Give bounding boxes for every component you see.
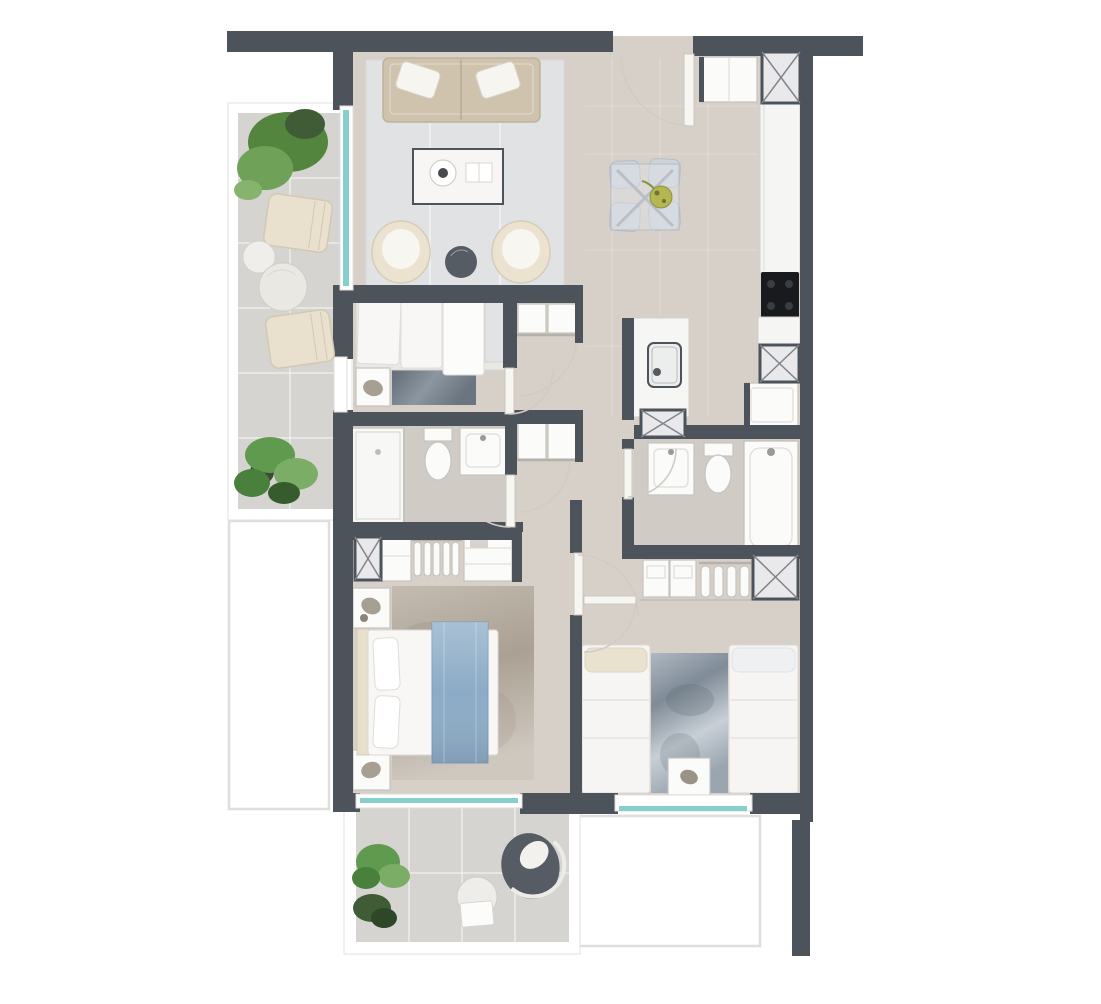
- bed-duvet: [443, 293, 484, 375]
- master-door-leaf: [574, 553, 583, 615]
- kitchen-sink: [648, 343, 681, 387]
- wall-corridor-west: [570, 500, 582, 553]
- burner: [767, 280, 775, 288]
- toilet-tank: [424, 428, 452, 441]
- toilet-bowl: [705, 455, 731, 493]
- wall-laundry-jamb: [744, 383, 750, 427]
- bathtub: [744, 441, 798, 553]
- centerpiece-detail: [655, 191, 660, 196]
- master-window-glass: [360, 798, 518, 803]
- wardrobe-lower-panel: [548, 418, 576, 459]
- hanging-clothes: [433, 542, 440, 576]
- wardrobe-upper-panel: [548, 304, 576, 333]
- armchair-cushion: [382, 229, 420, 269]
- wall-master-closet-east: [512, 522, 522, 582]
- bedroom2-window-glass: [619, 806, 747, 811]
- laundry-appliance: [746, 383, 798, 427]
- bedroom1-door-leaf: [505, 368, 514, 414]
- headboard: [357, 629, 369, 755]
- bed-runner-shade: [432, 622, 488, 763]
- wall-east-lower-stub: [792, 820, 810, 956]
- shaft-bedroom2-closet: [753, 555, 798, 599]
- plant-foliage: [371, 908, 397, 928]
- wall-bathroom2-west-upper: [622, 439, 634, 449]
- basin-faucet: [668, 449, 674, 455]
- cooktop: [761, 272, 799, 318]
- toilet: [704, 443, 733, 493]
- tub-rim: [744, 441, 798, 553]
- basin-faucet: [480, 435, 486, 441]
- twin-bed-right: [729, 645, 798, 793]
- floor-plan-drawing: [0, 0, 1101, 1004]
- wall-bedroom2-south-east: [750, 793, 802, 814]
- kitchen-counter-north: [760, 102, 800, 273]
- wall-bathroom2-west-lower: [622, 497, 634, 545]
- washbasin: [460, 428, 506, 475]
- rug-mottle: [666, 684, 714, 716]
- bathroom1-door-leaf: [506, 475, 515, 527]
- toilet: [424, 428, 452, 480]
- shaft-master-closet: [355, 537, 381, 580]
- shower: [352, 428, 404, 523]
- plant-foliage: [378, 864, 410, 888]
- pillow: [373, 637, 401, 690]
- bedroom2-door-leaf: [584, 596, 636, 604]
- bedroom1-window: [334, 357, 347, 412]
- hanging-clothes: [414, 542, 421, 576]
- entry-floor: [613, 36, 693, 66]
- wardrobe-upper-panel: [518, 304, 546, 333]
- pillow: [732, 648, 795, 672]
- wall-bedroom2-west: [570, 615, 582, 793]
- hanging-clothes: [452, 542, 459, 576]
- centerpiece-detail: [662, 199, 666, 203]
- shower-drain: [375, 449, 381, 455]
- side-table-dark: [445, 246, 477, 278]
- plant-foliage: [234, 469, 270, 497]
- coffee-table: [413, 149, 503, 204]
- wall-west-upper: [333, 50, 353, 110]
- master-bed: [357, 622, 498, 763]
- bathroom2-door-leaf: [624, 449, 632, 499]
- wall-west-lower: [333, 410, 353, 812]
- bed-duvet: [401, 292, 442, 368]
- tray-cup: [438, 168, 448, 178]
- burner: [785, 302, 793, 310]
- armchair-left: [372, 221, 430, 283]
- hanging-clothes: [714, 566, 723, 597]
- entry-closet-side-wall: [699, 57, 704, 102]
- hanging-clothes: [443, 542, 450, 576]
- balcony-sliding-glass-door: [343, 110, 349, 286]
- hanging-clothes: [424, 542, 431, 576]
- wall-bathroom1-east-upper: [505, 420, 517, 475]
- shaft-kitchen-east: [760, 345, 799, 382]
- wall-bedroom1-north: [337, 285, 583, 303]
- table-box: [460, 901, 494, 928]
- tub-faucet: [767, 448, 775, 456]
- plant-foliage: [285, 109, 325, 139]
- wall-kitchen-island-west: [622, 318, 634, 420]
- toilet-bowl: [425, 442, 451, 480]
- pillow: [373, 695, 401, 748]
- centerpiece-plant: [650, 186, 672, 208]
- entrance-door-leaf: [684, 54, 694, 126]
- shaft-island: [641, 410, 685, 437]
- toilet-tank: [704, 443, 733, 456]
- plant-foliage: [352, 867, 380, 889]
- wall-south-center: [520, 793, 618, 814]
- sofa: [383, 58, 540, 122]
- plant-sprig: [234, 180, 262, 200]
- wardrobe-lower-panel: [518, 418, 546, 459]
- twin-bed-left: [582, 645, 650, 793]
- bed-pillow-section: [357, 293, 401, 364]
- wall-closet1-stub: [575, 303, 583, 343]
- hanging-clothes: [701, 566, 710, 597]
- hanging-clothes: [740, 566, 749, 597]
- burner: [767, 302, 775, 310]
- armchair-right: [492, 221, 550, 283]
- neighbor-unit-outline-left: [229, 521, 329, 809]
- dining-area: [609, 158, 680, 232]
- sink-faucet: [653, 368, 661, 376]
- armchair-cushion: [502, 229, 540, 269]
- lounge-chair-1: [263, 193, 334, 253]
- shaft-entry: [762, 52, 800, 103]
- neighbor-unit-outline-bottom-right: [578, 816, 760, 946]
- wall-bedroom1-south: [337, 412, 509, 426]
- hanging-clothes: [727, 566, 736, 597]
- kitchen-counter-south: [758, 317, 800, 346]
- living-room: [366, 58, 564, 290]
- nightstand-decor: [360, 614, 368, 622]
- plant-foliage: [268, 482, 300, 504]
- lounge-chair-2: [265, 309, 336, 369]
- wall-top-west: [227, 31, 613, 52]
- wall-closet2-stub: [575, 415, 583, 462]
- burner: [785, 280, 793, 288]
- floor-plan-page: Apartment floor plan — top-down 2D archi…: [0, 0, 1101, 1004]
- wall-east: [800, 44, 813, 822]
- wall-bedroom1-east: [503, 303, 517, 368]
- wall-master-north: [353, 522, 523, 532]
